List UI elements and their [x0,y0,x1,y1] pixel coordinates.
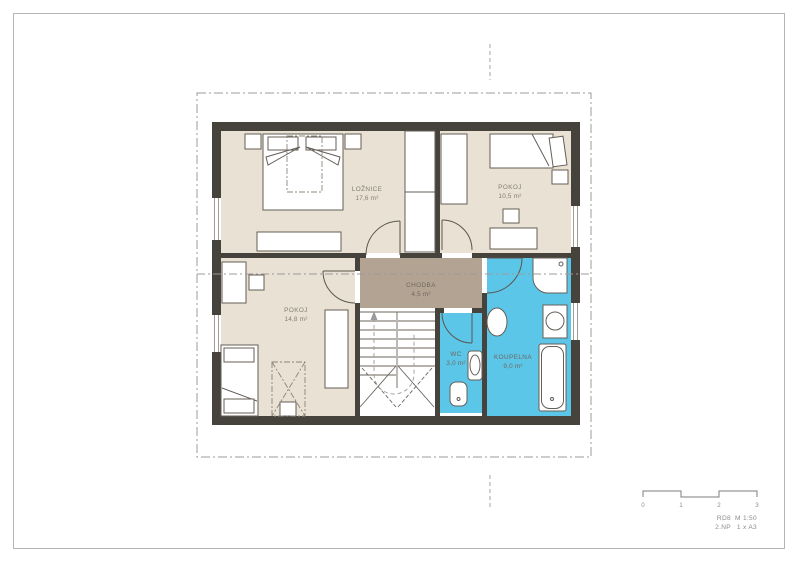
window-loznice [212,198,221,240]
single-bed [490,134,553,168]
drawing-sheet: LOŽNICE 17,6 m² POKOJ 10,5 m² POKOJ 14,8… [0,0,800,566]
wc-washbasin [468,351,482,380]
shower [533,258,567,293]
label-pokoj-dolni-area: 14,8 m² [284,316,307,323]
nightstand [280,402,296,416]
wardrobe [441,134,467,204]
washing-machine [543,305,567,338]
floor-plan-canvas: LOŽNICE 17,6 m² POKOJ 10,5 m² POKOJ 14,8… [0,0,800,566]
title-block: RD8 M 1:50 2.NP 1 x A3 [715,515,757,531]
label-pokoj-horni-area: 10,5 m² [498,193,521,200]
pillow-left [268,137,298,150]
label-chodba-name: CHODBA [406,282,436,289]
label-chodba-area: 4,5 m² [411,291,430,298]
builtin-closet [405,131,435,252]
bed-drawer [224,399,254,413]
chair [503,209,519,223]
label-koupelna-name: KOUPELNA [494,354,532,361]
label-pokoj-dolni-name: POKOJ [284,307,308,314]
label-pokoj-horni-name: POKOJ [498,184,522,191]
nightstand [552,170,568,184]
label-wc-area: 3,0 m² [446,360,465,367]
scale-bar: 0 1 2 3 [641,491,759,509]
label-wc-name: WC [450,351,461,358]
stair-walk-line [371,311,415,394]
project-code: RD8 [717,515,731,522]
bathtub [539,344,566,411]
label-loznice-name: LOŽNICE [352,184,383,193]
window-pokoj-horni [571,206,580,247]
scale-tick-1: 1 [679,502,683,509]
desk [222,262,246,303]
label-loznice-area: 17,6 m² [355,195,378,202]
label-koupelna-area: 9,0 m² [503,363,522,370]
nightstand-right [345,134,361,149]
desk [490,228,537,249]
window-pokoj-dolni [212,315,221,352]
floor-label: 2.NP [715,524,731,531]
scale-tick-3: 3 [755,502,759,509]
drawing-scale: M 1:50 [735,515,757,522]
pillow [224,348,254,362]
chair [249,275,264,290]
toilet [450,382,467,406]
sheet-format: 1 x A3 [737,524,757,531]
window-koupelna [571,303,580,340]
nightstand-left [245,134,261,149]
dresser [257,232,341,251]
wardrobe [325,310,348,388]
washbasin [487,308,507,336]
scale-tick-0: 0 [641,502,645,509]
scale-tick-2: 2 [717,502,721,509]
staircase [360,311,435,407]
